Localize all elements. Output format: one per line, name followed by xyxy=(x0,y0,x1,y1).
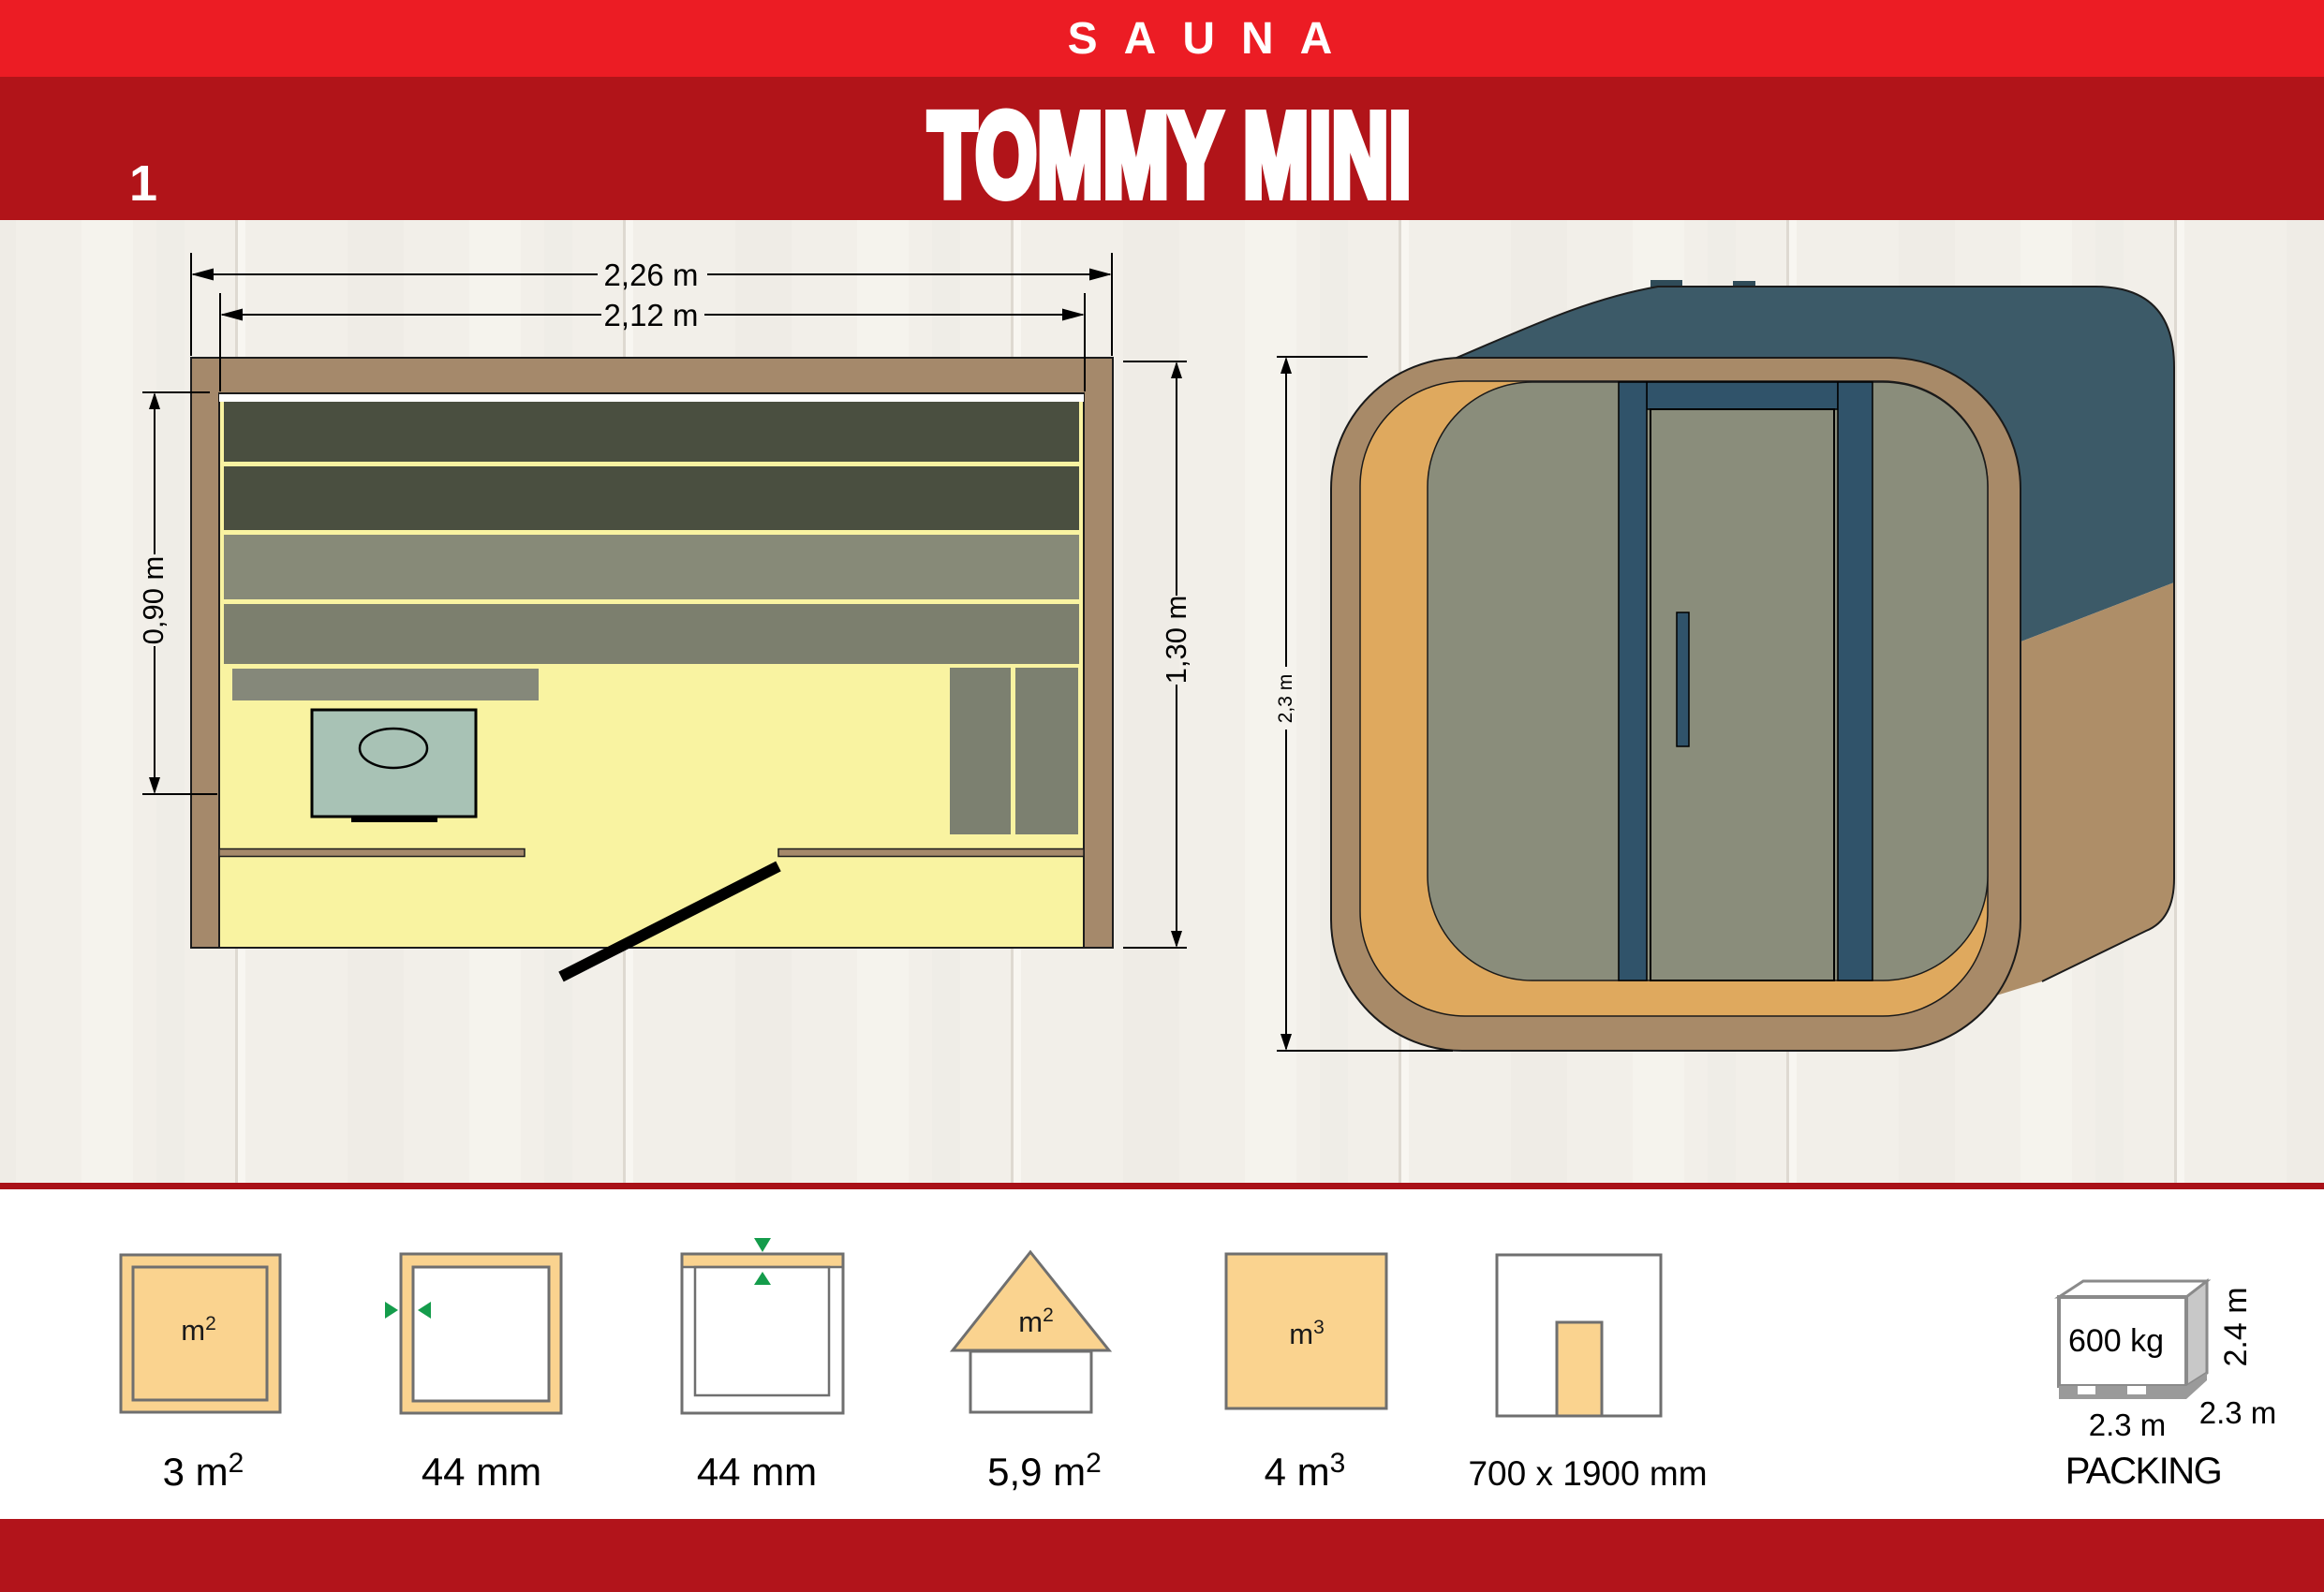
svg-text:2,3 m: 2,3 m xyxy=(1275,674,1296,724)
svg-text:1,30 m: 1,30 m xyxy=(1160,596,1192,685)
svg-text:44 mm: 44 mm xyxy=(422,1450,541,1494)
svg-text:1: 1 xyxy=(129,155,157,212)
svg-text:2.3 m: 2.3 m xyxy=(2089,1408,2167,1442)
svg-text:2.3 m: 2.3 m xyxy=(2199,1395,2277,1430)
svg-text:2,26 m: 2,26 m xyxy=(604,258,699,292)
svg-text:PACKING: PACKING xyxy=(2065,1451,2222,1492)
svg-text:700 x 1900 mm: 700 x 1900 mm xyxy=(1468,1454,1707,1493)
svg-text:SAUNA: SAUNA xyxy=(1068,14,1359,64)
svg-text:600 kg: 600 kg xyxy=(2068,1323,2164,1359)
svg-text:44 mm: 44 mm xyxy=(697,1450,817,1494)
svg-text:TOMMY MINI: TOMMY MINI xyxy=(928,89,1412,221)
svg-text:5,9 m2: 5,9 m2 xyxy=(987,1448,1102,1494)
svg-text:2,12 m: 2,12 m xyxy=(604,298,699,332)
svg-text:0,90 m: 0,90 m xyxy=(137,556,170,645)
svg-text:2.4 m: 2.4 m xyxy=(2218,1287,2254,1366)
